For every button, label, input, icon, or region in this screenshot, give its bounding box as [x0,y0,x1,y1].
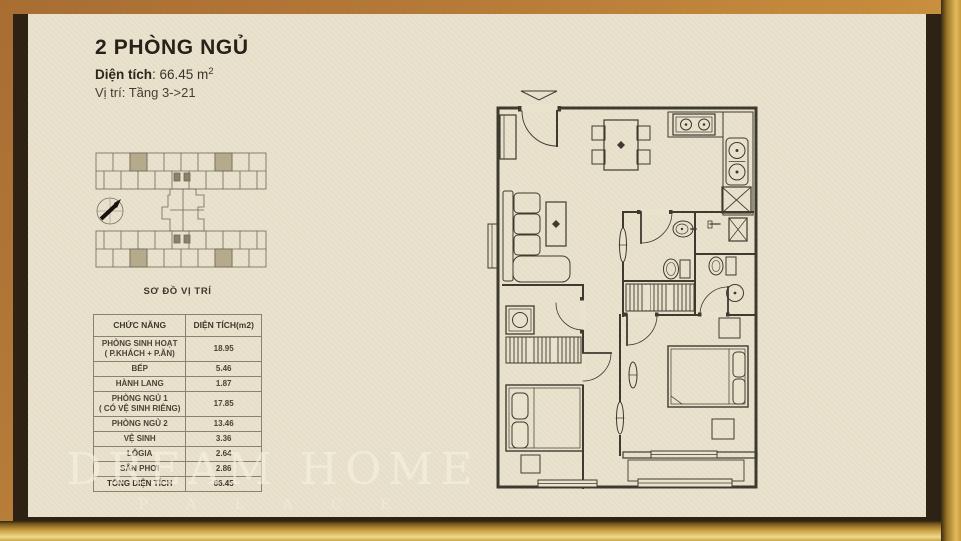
building-outline [96,153,266,267]
bathroom2-sink [727,285,744,302]
service-shaft [708,187,751,241]
entrance-door [518,104,561,146]
bedroom1-bed [668,346,748,407]
table-row: SÂN PHƠI2.86 [94,461,262,476]
compass-icon [97,198,123,224]
table-row: PHÒNG NGỦ 213.46 [94,416,262,431]
bedroom1-nightstand [712,318,740,439]
bedroom2-door [583,353,611,381]
bathroom1-door [641,212,672,243]
shoe-cabinet [500,115,516,159]
floor-plan-drawing [483,82,773,504]
gold-frame-bottom [0,521,961,541]
kitchen-stove [673,114,715,135]
square-meter-sup: 2 [208,66,213,77]
kitchen-sink [726,138,748,185]
col-function: CHỨC NĂNG [94,315,186,337]
coffee-table [546,202,566,246]
kitchen-counter [668,112,753,215]
table-header-row: CHỨC NĂNG DIỆN TÍCH(m2) [94,315,262,337]
bathroom2-door [700,287,728,315]
logia [623,451,757,487]
table-row: HÀNH LANG1.87 [94,376,262,391]
bathroom2-toilet [709,257,736,275]
table-row: LÔGIA2.64 [94,446,262,461]
table-row: PHÒNG SINH HOẠT( P.KHÁCH + P.ĂN)18.95 [94,336,262,361]
left-ledge [488,224,497,268]
bedroom2-wardrobe [506,337,581,363]
area-label: Diện tích [95,67,152,82]
sofa [503,191,570,282]
bedroom2-bed [506,385,583,451]
location-line: Vị trí: Tầng 3->21 [95,85,249,100]
table-row: VỆ SINH3.36 [94,431,262,446]
dining-table [592,120,650,170]
table-row: PHÒNG NGỦ 1( CÓ VỆ SINH RIÊNG)17.85 [94,391,262,416]
site-plan-caption: SƠ ĐỒ VỊ TRÍ [93,286,262,297]
bathroom1-sink [673,221,696,237]
table-total-row: TỔNG DIỆN TÍCH66.45 [94,476,262,491]
entrance-arrow-icon [521,91,557,100]
unit-info-header: 2 PHÒNG NGỦ Diện tích: 66.45 m2 Vị trí: … [95,36,249,100]
bedroom2-window [538,480,597,487]
page-title: 2 PHÒNG NGỦ [95,36,249,60]
col-area: DIỆN TÍCH(m2) [186,315,262,337]
gold-frame-right [941,0,961,541]
hall-closet [626,284,694,311]
corridor-walls [580,285,623,488]
area-line: Diện tích: 66.45 m2 [95,67,249,82]
bedroom2-nightstand [521,455,540,473]
watermark-sub: P A L A C E [53,497,493,513]
bathroom1-toilet [664,259,691,279]
washing-machine [506,306,534,334]
table-row: BẾP5.46 [94,361,262,376]
site-plan-diagram [88,147,278,269]
area-table: CHỨC NĂNG DIỆN TÍCH(m2) PHÒNG SINH HOẠT(… [93,314,262,492]
brochure-page: 2 PHÒNG NGỦ Diện tích: 66.45 m2 Vị trí: … [28,14,926,517]
